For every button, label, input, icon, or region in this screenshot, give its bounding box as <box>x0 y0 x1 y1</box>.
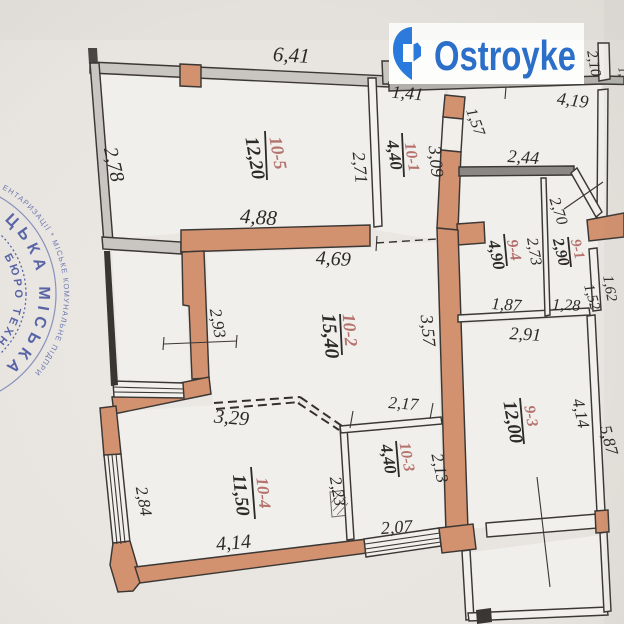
svg-text:4,88: 4,88 <box>239 204 278 231</box>
svg-text:2,71: 2,71 <box>349 151 372 184</box>
svg-text:3,57: 3,57 <box>416 313 439 348</box>
svg-text:10-4: 10-4 <box>252 476 274 509</box>
svg-text:2,44: 2,44 <box>507 146 540 168</box>
svg-text:4,19: 4,19 <box>556 88 590 112</box>
svg-text:3,29: 3,29 <box>212 405 250 430</box>
svg-text:1,28: 1,28 <box>552 296 581 314</box>
svg-text:2,17: 2,17 <box>388 393 420 414</box>
svg-text:4,69: 4,69 <box>315 247 351 271</box>
svg-text:1,41: 1,41 <box>391 82 424 105</box>
svg-text:1,87: 1,87 <box>491 294 523 315</box>
svg-text:11,50: 11,50 <box>228 473 253 517</box>
svg-text:15,40: 15,40 <box>317 313 343 360</box>
svg-text:3,09: 3,09 <box>424 144 447 178</box>
svg-text:2,91: 2,91 <box>509 323 542 345</box>
svg-text:6,41: 6,41 <box>272 42 310 68</box>
svg-text:4,14: 4,14 <box>215 531 252 556</box>
svg-text:2,07: 2,07 <box>380 516 414 538</box>
